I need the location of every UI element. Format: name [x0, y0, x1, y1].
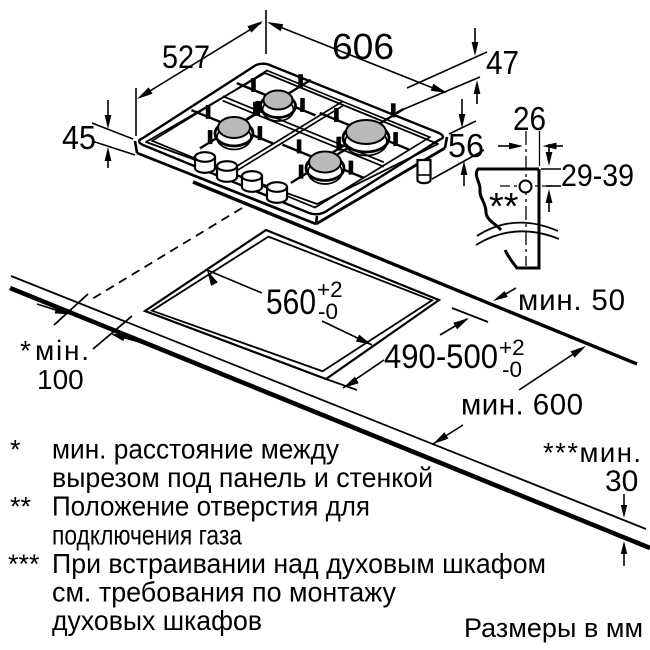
svg-text:45: 45 [62, 119, 96, 156]
svg-text:см. требования по монтажу: см. требования по монтажу [52, 577, 396, 608]
svg-text:490-500: 490-500 [384, 338, 498, 376]
svg-text:29-39: 29-39 [561, 157, 634, 193]
svg-text:духовых шкафов: духовых шкафов [52, 605, 262, 636]
svg-text:527: 527 [162, 39, 210, 75]
svg-text:-0: -0 [502, 357, 522, 382]
svg-text:-0: -0 [318, 299, 338, 324]
svg-text:**: ** [10, 492, 32, 522]
svg-text:*: * [20, 335, 31, 366]
svg-text:560: 560 [266, 282, 316, 322]
svg-text:47: 47 [486, 44, 519, 81]
svg-text:При встраивании над духовым шк: При встраивании над духовым шкафом [52, 548, 546, 579]
svg-text:30: 30 [605, 465, 638, 498]
svg-text:мин. 600: мин. 600 [461, 389, 583, 422]
svg-text:*: * [10, 435, 21, 465]
svg-text:вырезом под панель и стенкой: вырезом под панель и стенкой [52, 462, 433, 493]
svg-text:56: 56 [448, 127, 484, 164]
svg-text:***: *** [8, 549, 40, 579]
svg-text:Положение отверстия для: Положение отверстия для [52, 491, 370, 522]
svg-text:26: 26 [513, 100, 546, 137]
svg-text:606: 606 [332, 26, 394, 67]
svg-text:мин. 50: мин. 50 [518, 284, 625, 317]
svg-text:100: 100 [37, 364, 84, 395]
svg-text:подключения газа: подключения газа [52, 519, 243, 550]
svg-text:мин. расстояние между: мин. расстояние между [52, 434, 339, 465]
svg-text:Размеры в мм: Размеры в мм [464, 613, 643, 643]
svg-text:***мин.: ***мин. [543, 437, 641, 468]
svg-text:**: ** [489, 186, 519, 228]
svg-text:мін.: мін. [35, 335, 89, 366]
